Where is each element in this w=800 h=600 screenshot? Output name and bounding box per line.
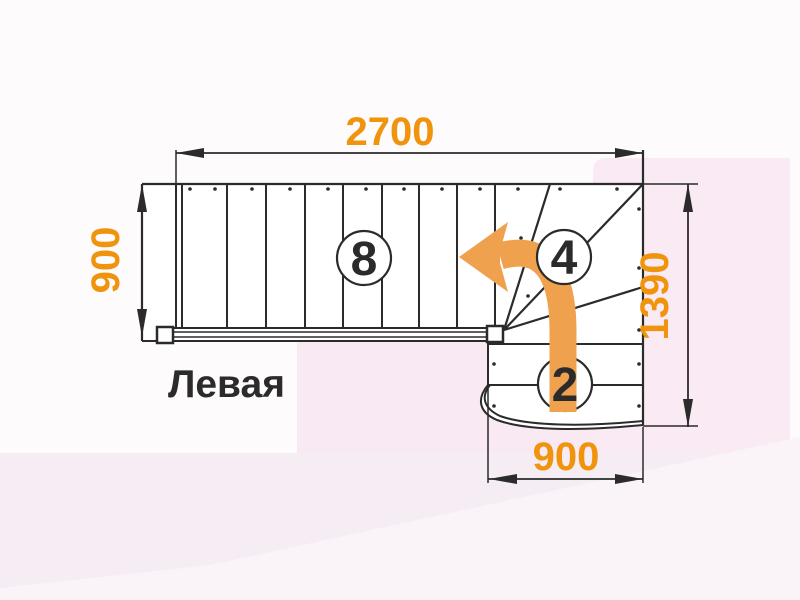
dimension-label-top: 2700 [346, 110, 435, 154]
stair-plan-drawing: 8 4 2 2700 900 1390 900 Левая [0, 0, 800, 600]
step-count-winder: 4 [551, 232, 578, 285]
dimension-label-bottom: 900 [533, 435, 600, 479]
arrowhead-down-icon [683, 399, 693, 427]
arrowhead-left-icon [489, 474, 517, 484]
arrowhead-right-icon [615, 474, 643, 484]
arrowhead-left-icon [176, 148, 204, 158]
arrowhead-up-icon [683, 184, 693, 212]
page-title: Левая [168, 363, 285, 406]
dimension-label-left: 900 [84, 227, 128, 294]
dimension-label-right: 1390 [633, 252, 677, 341]
newel-post-left [157, 327, 173, 343]
step-count-main: 8 [351, 233, 378, 286]
arrowhead-right-icon [615, 148, 643, 158]
newel-post-corner [487, 326, 503, 342]
step-count-lower: 2 [552, 359, 579, 412]
